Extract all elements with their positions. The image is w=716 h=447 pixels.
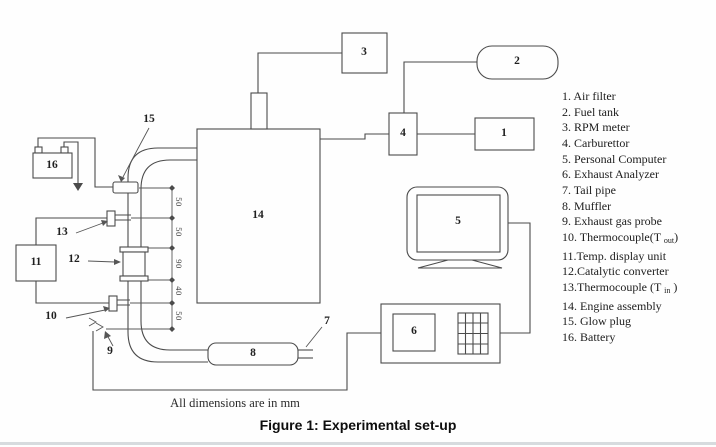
label-thermocouple-in: 13 xyxy=(51,225,73,239)
dimension-label-4: 40 xyxy=(173,281,185,301)
legend-item-text: 6. Exhaust Analyzer xyxy=(562,167,659,181)
probe-insert-arrows xyxy=(89,318,103,331)
label-muffler: 8 xyxy=(242,346,264,360)
dimensions-note: All dimensions are in mm xyxy=(130,396,340,411)
tail-pipe-shape xyxy=(298,350,313,358)
legend-item-text: 8. Muffler xyxy=(562,199,611,213)
legend-item-text: 11.Temp. display unit xyxy=(562,249,666,263)
fuel-line xyxy=(404,62,477,113)
analyzer-keypad xyxy=(458,313,488,354)
legend-item-text: 7. Tail pipe xyxy=(562,183,616,197)
label-battery: 16 xyxy=(41,158,63,172)
label-personal-computer: 5 xyxy=(447,214,469,228)
legend-item-text: ) xyxy=(674,230,678,244)
label-exhaust-gas-probe: 9 xyxy=(99,344,121,358)
carburettor-engine-line xyxy=(320,134,389,139)
legend-item: 8. Muffler xyxy=(562,199,714,215)
legend-item-text: 1. Air filter xyxy=(562,89,616,103)
thermocouple-in-shape xyxy=(107,211,131,226)
legend-item-text: 5. Personal Computer xyxy=(562,152,666,166)
legend-item: 2. Fuel tank xyxy=(562,105,714,121)
legend: 1. Air filter 2. Fuel tank 3. RPM meter … xyxy=(562,89,714,346)
glow-plug-leader xyxy=(123,128,149,177)
legend-item-text: 12.Catalytic converter xyxy=(562,264,669,278)
legend-item: 12.Catalytic converter xyxy=(562,264,714,280)
figure-panel: 1 2 3 4 5 6 7 8 9 10 11 12 13 14 15 16 5… xyxy=(0,0,716,447)
label-thermocouple-out: 10 xyxy=(40,309,62,323)
page-edge-line xyxy=(0,442,716,445)
label-tail-pipe: 7 xyxy=(316,314,338,328)
legend-item: 9. Exhaust gas probe xyxy=(562,214,714,230)
rpm-sensor-shape xyxy=(251,93,267,129)
legend-item: 14. Engine assembly xyxy=(562,299,714,315)
label-catalytic-converter: 12 xyxy=(63,252,85,266)
catalytic-converter-leader xyxy=(88,261,115,262)
label-temp-display-unit: 11 xyxy=(25,255,47,269)
legend-item: 11.Temp. display unit xyxy=(562,249,714,265)
legend-item: 13.Thermocouple (T in ) xyxy=(562,280,714,299)
label-engine-assembly: 14 xyxy=(247,208,269,222)
dimension-label-3: 90 xyxy=(173,254,185,274)
tail-pipe-leader xyxy=(306,327,322,347)
legend-item: 3. RPM meter xyxy=(562,120,714,136)
dimension-label-2: 50 xyxy=(173,222,185,242)
dimension-label-1: 50 xyxy=(173,192,185,212)
legend-item: 5. Personal Computer xyxy=(562,152,714,168)
exhaust-analyzer-shape xyxy=(381,304,500,363)
legend-item-text: 13.Thermocouple (T xyxy=(562,280,664,294)
legend-item-text: 16. Battery xyxy=(562,330,615,344)
legend-item-text: 15. Glow plug xyxy=(562,314,631,328)
glow-plug-shape xyxy=(113,182,138,193)
label-glow-plug: 15 xyxy=(138,112,160,126)
label-fuel-tank: 2 xyxy=(506,54,528,68)
legend-item-text: ) xyxy=(670,280,677,294)
legend-item-text: 2. Fuel tank xyxy=(562,105,619,119)
legend-item-text: 10. Thermocouple(T xyxy=(562,230,664,244)
legend-item: 7. Tail pipe xyxy=(562,183,714,199)
legend-item: 1. Air filter xyxy=(562,89,714,105)
legend-item-text: 4. Carburettor xyxy=(562,136,629,150)
legend-item-subscript: out xyxy=(664,236,674,245)
legend-item: 4. Carburettor xyxy=(562,136,714,152)
legend-item: 16. Battery xyxy=(562,330,714,346)
catalytic-converter-shape xyxy=(120,247,148,281)
label-carburettor: 4 xyxy=(392,126,414,140)
thermocouple-in-leader xyxy=(76,223,103,233)
legend-item-text: 3. RPM meter xyxy=(562,120,630,134)
legend-item: 6. Exhaust Analyzer xyxy=(562,167,714,183)
label-air-filter: 1 xyxy=(493,126,515,140)
legend-item: 10. Thermocouple(T out) xyxy=(562,230,714,249)
ground-symbol xyxy=(73,183,83,191)
label-rpm-meter: 3 xyxy=(353,45,375,59)
legend-item-text: 14. Engine assembly xyxy=(562,299,662,313)
leader-arrowheads xyxy=(101,175,125,339)
rpm-meter-wire xyxy=(258,53,342,93)
thermocouple-out-shape xyxy=(109,296,130,311)
label-exhaust-analyzer: 6 xyxy=(403,324,425,338)
figure-caption: Figure 1: Experimental set-up xyxy=(0,417,716,433)
legend-item-text: 9. Exhaust gas probe xyxy=(562,214,662,228)
thermocouple-out-leader xyxy=(66,310,105,318)
legend-item: 15. Glow plug xyxy=(562,314,714,330)
dimension-label-5: 50 xyxy=(173,306,185,326)
